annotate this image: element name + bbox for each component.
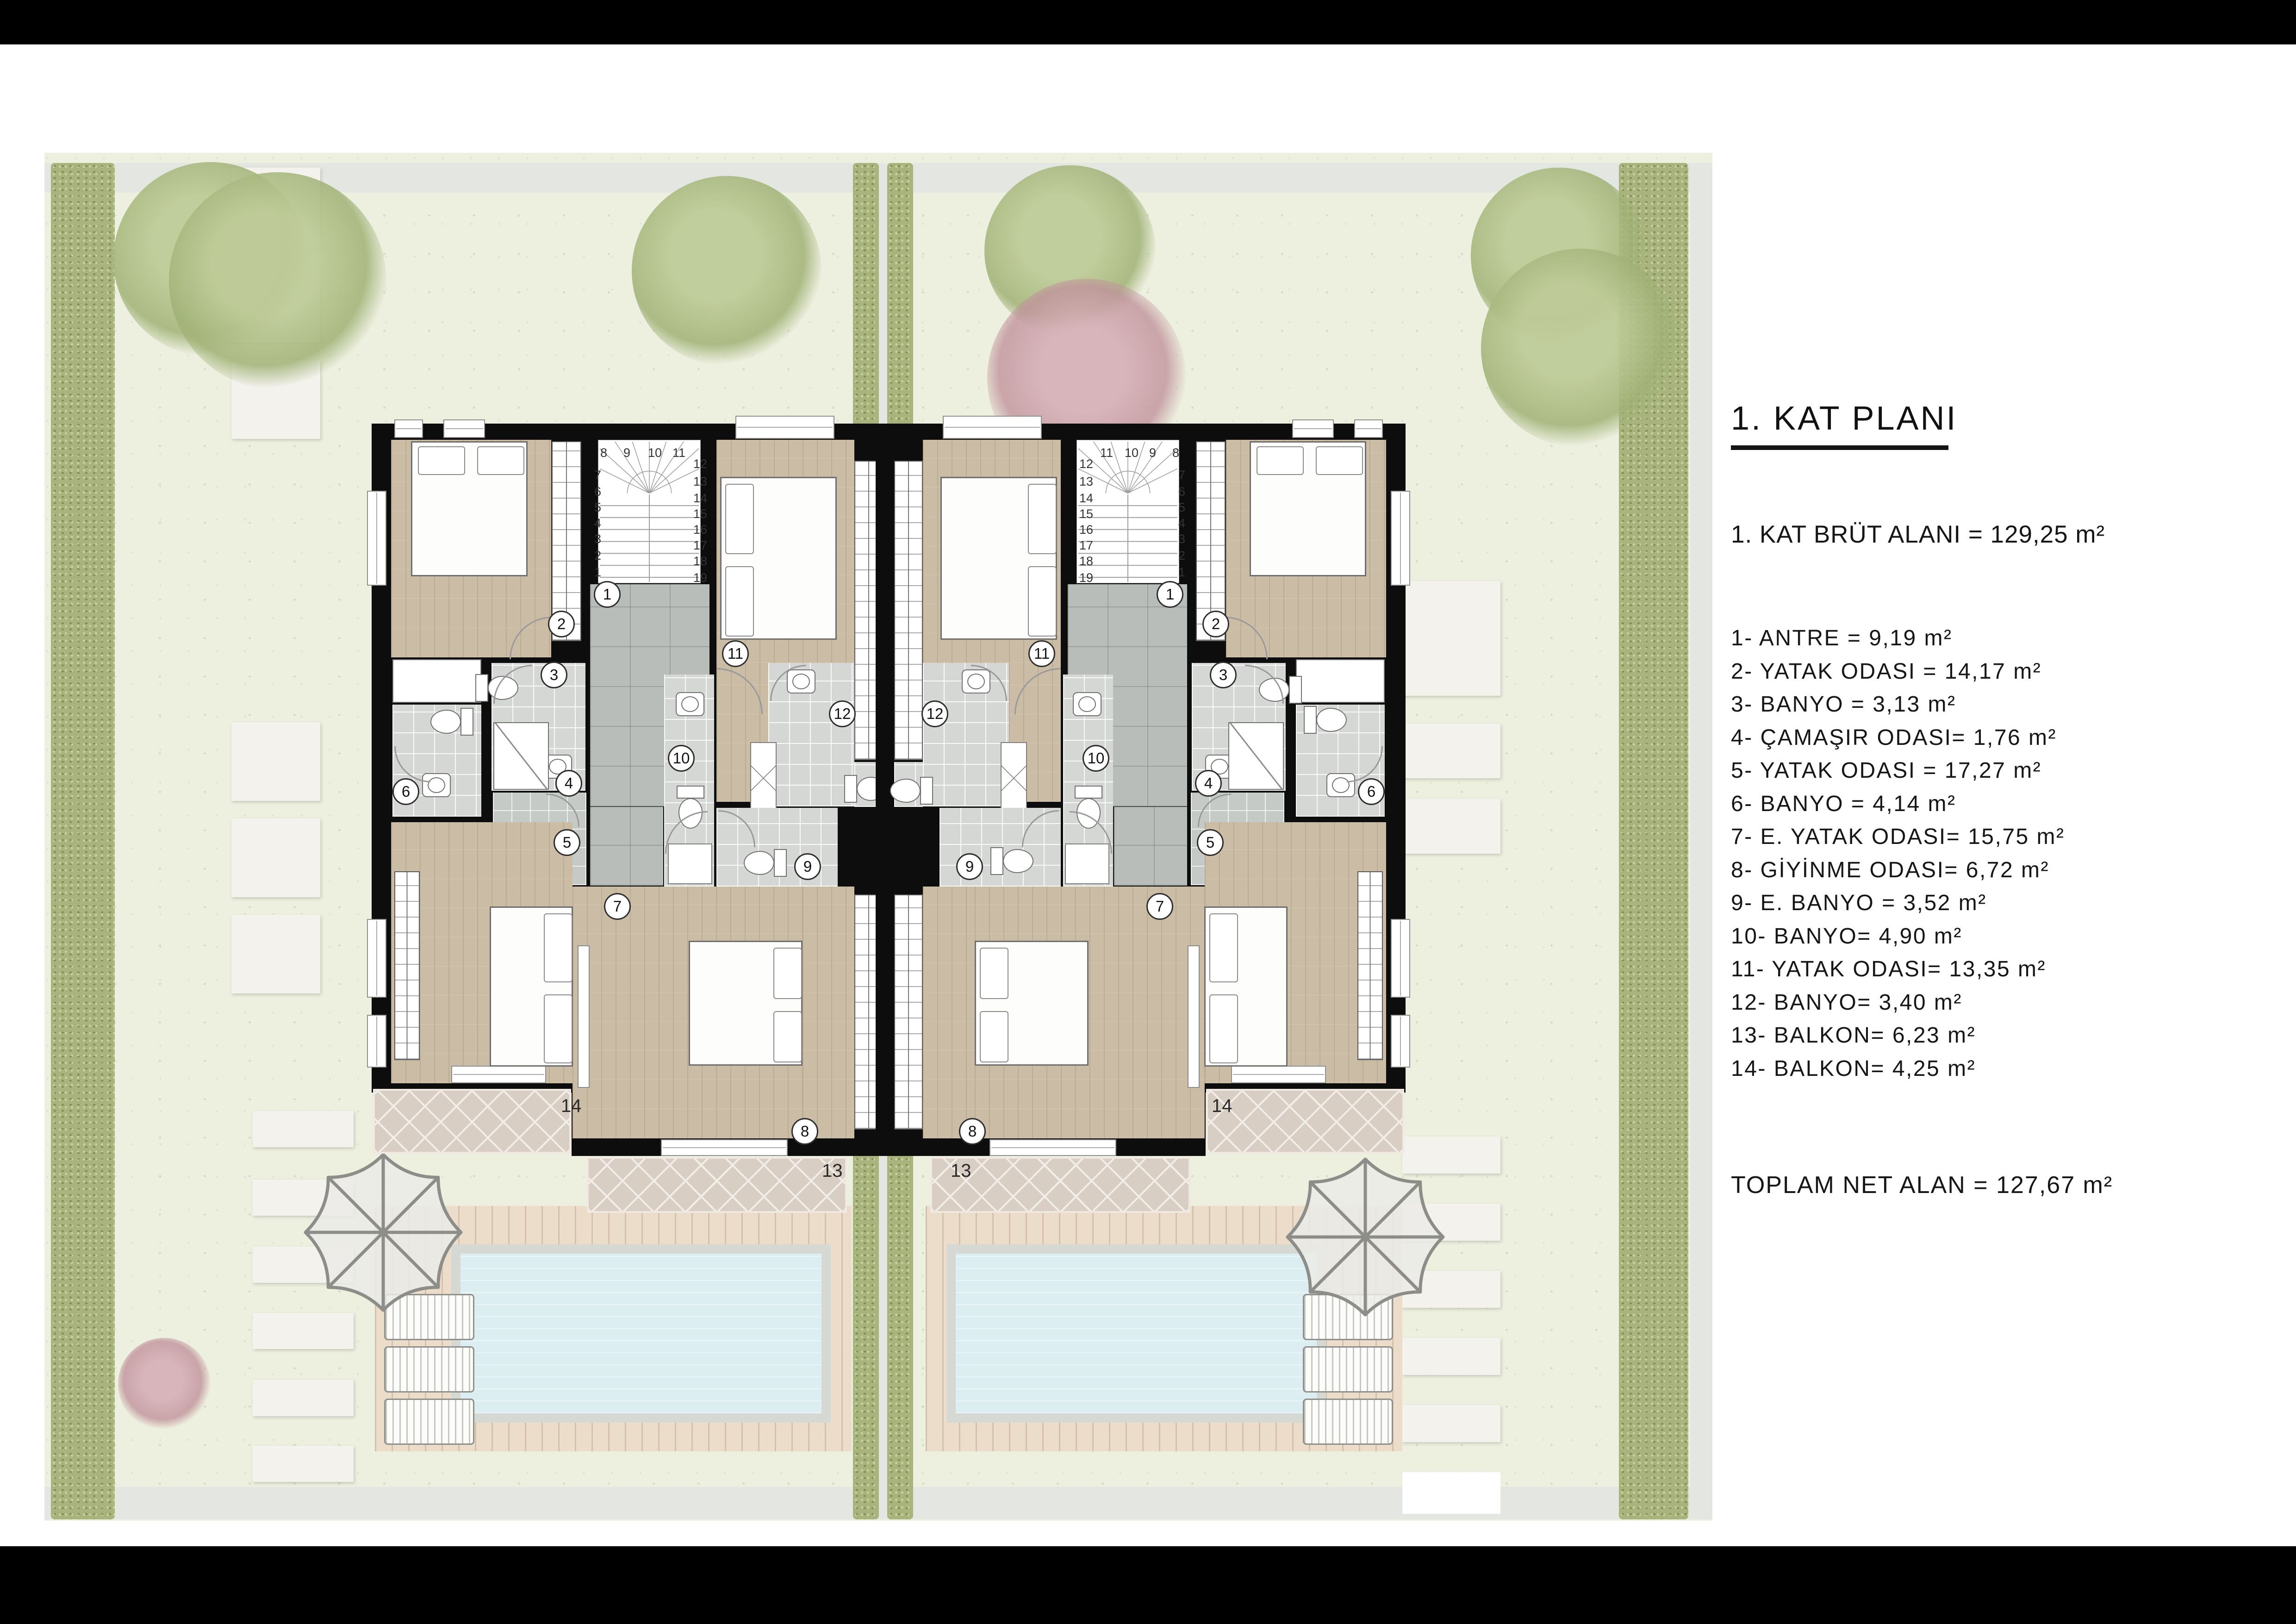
legend-item: 11- YATAK ODASI= 13,35 m² (1731, 953, 2286, 986)
stair-number: 12 (1079, 457, 1084, 462)
room-number-6: 6 (1358, 778, 1385, 805)
room-number-11: 11 (722, 640, 749, 667)
stair-number: 6 (1178, 485, 1183, 489)
bed (689, 941, 803, 1066)
pillow (1257, 446, 1304, 475)
stair-number: 2 (1178, 549, 1183, 553)
window (1391, 1015, 1410, 1068)
wardrobe (1357, 871, 1383, 1060)
legend-item: 2- YATAK ODASI = 14,17 m² (1731, 655, 2286, 688)
plan-title: 1. KAT PLANI (1731, 402, 2286, 435)
stair-number: 15 (693, 507, 698, 512)
window (1292, 419, 1334, 438)
legend-item: 7- E. YATAK ODASI= 15,75 m² (1731, 820, 2286, 854)
room-number-13: 13 (951, 1161, 955, 1165)
legend-panel: 1. KAT PLANI 1. KAT BRÜT ALANI = 129,25 … (1731, 402, 2286, 1197)
closet (392, 659, 481, 703)
legend-item: 5- YATAK ODASI = 17,27 m² (1731, 754, 2286, 787)
room-number-7: 7 (1146, 893, 1173, 920)
wardrobe (394, 871, 420, 1060)
stair-number: 1 (1178, 565, 1183, 570)
pillow (1209, 994, 1238, 1063)
window (989, 1139, 1116, 1156)
shelf (578, 945, 590, 1088)
shower-icon (493, 722, 549, 790)
balcony-14 (373, 1089, 571, 1154)
pillow (773, 948, 802, 999)
sink-icon (1073, 692, 1101, 716)
stair-number: 4 (594, 516, 599, 521)
room-number-8: 8 (959, 1118, 986, 1145)
legend-item: 13- BALKON= 6,23 m² (1731, 1019, 2286, 1052)
stepping-stone (231, 818, 320, 897)
umbrella (301, 1150, 466, 1315)
window (1391, 491, 1410, 586)
legend-item: 12- BANYO= 3,40 m² (1731, 986, 2286, 1019)
stair-number: 12 (693, 457, 698, 462)
toilet-icon (429, 705, 473, 737)
room-number-6: 6 (392, 778, 419, 805)
hedge (51, 163, 115, 1519)
stair-number: 17 (693, 538, 698, 543)
balcony-13 (587, 1157, 847, 1213)
pillow (1209, 913, 1238, 982)
room-number-3: 3 (1210, 662, 1237, 688)
stepping-stone (253, 1111, 354, 1147)
pillow (980, 948, 1008, 999)
shelf (1188, 945, 1200, 1088)
stair-number: 7 (594, 468, 599, 473)
toilet-icon (1304, 705, 1348, 737)
window (443, 419, 485, 438)
pillow (980, 1011, 1008, 1062)
pillow (1028, 566, 1057, 637)
tree (169, 172, 386, 390)
window (394, 419, 423, 438)
legend-item: 8- GİYİNME ODASI= 6,72 m² (1731, 854, 2286, 887)
bed (720, 477, 837, 640)
balcony-14 (1206, 1089, 1404, 1154)
room-number-1: 1 (1157, 581, 1183, 608)
room-number-12: 12 (829, 700, 856, 727)
room-number-10: 10 (1083, 745, 1109, 772)
legend-item: 10- BANYO= 4,90 m² (1731, 920, 2286, 953)
tree (632, 176, 821, 366)
stair-number: 5 (594, 500, 599, 505)
wardrobe (894, 461, 923, 760)
stair-number: 15 (1079, 507, 1084, 512)
sun-lounger (1303, 1346, 1393, 1393)
stair-number: 11 (672, 446, 677, 450)
stepping-stone (253, 1446, 354, 1482)
garden-path (1690, 163, 1712, 1519)
stepping-stone (253, 1380, 354, 1416)
room-number-3: 3 (541, 662, 567, 688)
stair-number: 6 (594, 485, 599, 489)
legend-item: 4- ÇAMAŞIR ODASI= 1,76 m² (1731, 721, 2286, 755)
stair-number: 5 (1178, 500, 1183, 505)
stepping-stone (231, 915, 320, 993)
window (1391, 919, 1410, 998)
shrub (118, 1338, 211, 1430)
room-number-11: 11 (1028, 640, 1055, 667)
room-number-10: 10 (668, 745, 695, 772)
pillow (773, 1011, 802, 1062)
dressing-room-floor (923, 887, 975, 1138)
stair-number: 9 (623, 446, 628, 450)
window (661, 1139, 788, 1156)
bed (1250, 441, 1366, 576)
title-underline (1731, 445, 1948, 450)
pillow (725, 566, 754, 637)
sun-lounger (384, 1399, 474, 1445)
stair-number: 4 (1178, 516, 1183, 521)
pool (451, 1244, 831, 1423)
stair-number: 8 (600, 446, 605, 450)
bed (1204, 906, 1288, 1067)
room-number-14: 14 (1212, 1096, 1216, 1100)
toilet-icon (889, 774, 933, 806)
legend-item: 1- ANTRE = 9,19 m² (1731, 622, 2286, 655)
stair-number: 7 (1178, 468, 1183, 473)
pillow (1316, 446, 1363, 475)
cabinet (750, 742, 777, 814)
toilet-icon (990, 846, 1035, 878)
room-number-2: 2 (1202, 611, 1229, 637)
stair-number: 3 (594, 532, 599, 537)
bed (411, 441, 528, 576)
stepping-stone (231, 722, 320, 801)
stepping-stone (1402, 1338, 1500, 1375)
window (367, 919, 386, 998)
stair-number: 18 (693, 554, 698, 559)
room-number-9: 9 (794, 853, 821, 880)
window (367, 491, 386, 586)
pillow (477, 446, 524, 475)
stair-number: 13 (1079, 475, 1084, 479)
sink-icon (676, 692, 704, 716)
bed (975, 941, 1089, 1066)
room-number-9: 9 (956, 853, 983, 880)
room-number-5: 5 (1197, 829, 1224, 856)
window (451, 1066, 546, 1083)
site-plan: 1234567891011121314891011765432112131415… (44, 153, 1712, 1521)
room-number-5: 5 (554, 829, 580, 856)
room-number-4: 4 (1195, 770, 1222, 797)
pillow (1028, 484, 1057, 554)
room-number-4: 4 (555, 770, 582, 797)
stepping-stone (1402, 1472, 1500, 1514)
umbrella (1283, 1155, 1448, 1319)
stair-number: 14 (693, 491, 698, 496)
legend-item: 6- BANYO = 4,14 m² (1731, 787, 2286, 821)
net-area-line: TOPLAM NET ALAN = 127,67 m² (1731, 1173, 2286, 1197)
sun-lounger (384, 1346, 474, 1393)
legend-item: 14- BALKON= 4,25 m² (1731, 1052, 2286, 1086)
hall-floor (590, 807, 663, 886)
window (367, 1015, 386, 1068)
window (1354, 419, 1383, 438)
room-number-14: 14 (561, 1096, 566, 1100)
stair-number: 19 (1079, 571, 1084, 575)
stair-number: 14 (1079, 491, 1084, 496)
room-number-1: 1 (594, 581, 621, 608)
stair-number: 3 (1178, 532, 1183, 537)
window (943, 416, 1042, 439)
stair-number: 13 (693, 475, 698, 479)
floor-plan-sheet: 1234567891011121314891011765432112131415… (0, 0, 2296, 1624)
gross-area-line: 1. KAT BRÜT ALANI = 129,25 m² (1731, 522, 2286, 547)
bed (490, 906, 573, 1067)
stepping-stone (1402, 724, 1500, 778)
stair-number: 19 (693, 571, 698, 575)
room-list: 1- ANTRE = 9,19 m²2- YATAK ODASI = 14,17… (1731, 622, 2286, 1085)
pillow (418, 446, 465, 475)
stair-number: 9 (1149, 446, 1154, 450)
closet (1296, 659, 1385, 703)
legend-item: 3- BANYO = 3,13 m² (1731, 688, 2286, 721)
shower-icon (1228, 722, 1284, 790)
stair-number: 17 (1079, 538, 1084, 543)
stair-number: 10 (1125, 446, 1129, 450)
pillow (725, 484, 754, 554)
pillow (544, 913, 572, 982)
stair-number: 8 (1172, 446, 1177, 450)
room-number-8: 8 (791, 1118, 818, 1145)
room-number-2: 2 (548, 611, 575, 637)
wardrobe (894, 894, 923, 1130)
stepping-stone (253, 1313, 354, 1349)
stepping-stone (1402, 799, 1500, 854)
bottom-black-bar (0, 1546, 2296, 1624)
legend-item: 9- E. BANYO = 3,52 m² (1731, 887, 2286, 920)
stair-number: 10 (648, 446, 653, 450)
stepping-stone (1402, 581, 1500, 696)
sun-lounger (1303, 1399, 1393, 1445)
dressing-room-floor (803, 887, 854, 1138)
room-number-13: 13 (822, 1161, 827, 1165)
stepping-stone (1402, 1405, 1500, 1442)
tree (1481, 249, 1680, 448)
toilet-icon (742, 846, 787, 878)
stair-number: 2 (594, 549, 599, 553)
bed (940, 477, 1057, 640)
hall-floor (1114, 807, 1187, 886)
window (1231, 1066, 1326, 1083)
cabinet (1001, 742, 1027, 814)
pool (946, 1244, 1326, 1423)
stair-number: 18 (1079, 554, 1084, 559)
stair-number: 16 (693, 523, 698, 527)
room-number-12: 12 (921, 700, 948, 727)
stair-number: 11 (1100, 446, 1105, 450)
staircase (598, 440, 701, 583)
stair-number: 16 (1079, 523, 1084, 527)
stair-number: 1 (594, 565, 599, 570)
pillow (544, 994, 572, 1063)
room-number-7: 7 (604, 893, 631, 920)
window (735, 416, 834, 439)
top-black-bar (0, 0, 2296, 44)
